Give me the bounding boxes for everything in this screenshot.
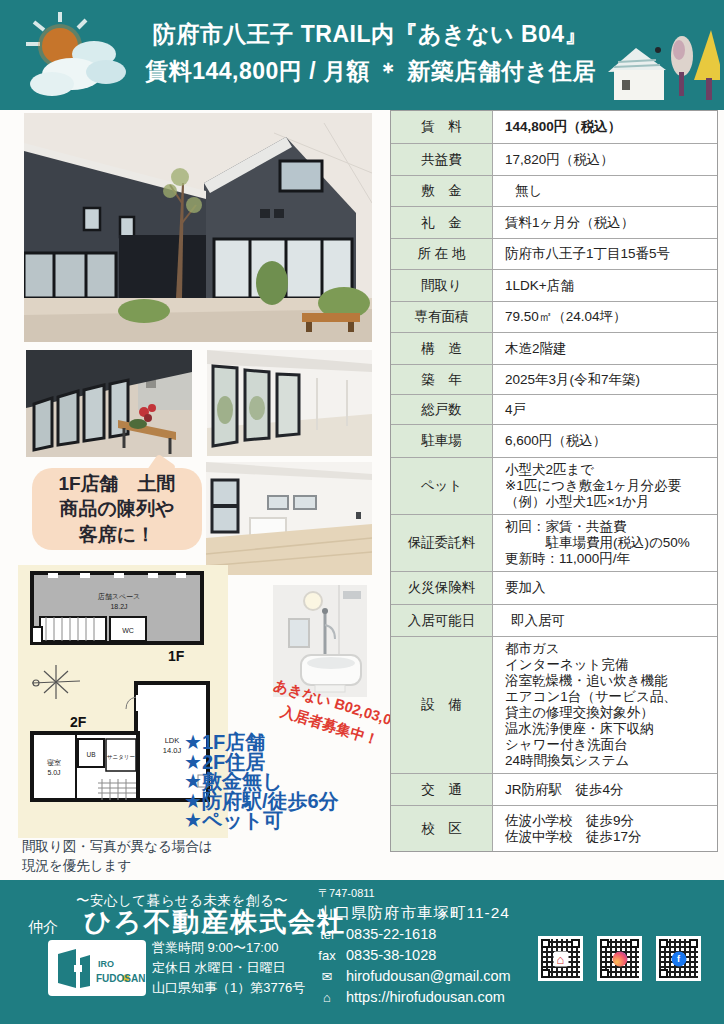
row-value: 144,800円（税込） (493, 111, 717, 143)
highlights-list: ★1F店舗 ★2F住居 ★敷金無し ★防府駅/徒歩6分 ★ペット可 (184, 733, 339, 831)
row-label: 敷 金 (391, 176, 493, 206)
row-label: 交 通 (391, 774, 493, 805)
highlight-item: ★1F店舗 (184, 733, 339, 753)
row-value: 初回：家賃・共益費 駐車場費用(税込)の50% 更新時：11,000円/年 (493, 515, 717, 571)
table-row: 校 区佐波小学校 徒歩9分 佐波中学校 徒歩17分 (391, 806, 717, 851)
postal-code: 〒747-0811 (318, 886, 511, 902)
floorplan-sanitary-label: サニタリー (107, 754, 135, 760)
row-label: 駐車場 (391, 425, 493, 457)
qr-code-instagram (597, 936, 642, 981)
row-label: 築 年 (391, 365, 493, 394)
logo-text-line2: FUDOSAN (96, 973, 145, 984)
table-row: 駐車場6,600円（税込） (391, 425, 717, 458)
row-value: 79.50㎡（24.04坪） (493, 302, 717, 332)
table-row: 総戸数4戸 (391, 395, 717, 425)
highlight-item: ★敷金無し (184, 772, 339, 792)
table-row: 敷 金無し (391, 176, 717, 207)
company-address: 山口県防府市車塚町11-24 (318, 902, 511, 924)
instagram-icon (612, 951, 627, 966)
floorplan-ldk-size: 14.0J (163, 746, 182, 755)
table-row: 専有面積79.50㎡（24.04坪） (391, 302, 717, 333)
qr-pattern: f (659, 939, 698, 978)
table-row: ペット小型犬2匹まで ※1匹につき敷金1ヶ月分必要 （例）小型犬1匹×1か月 (391, 458, 717, 515)
floorplan-ldk-label: LDK (165, 736, 180, 745)
row-value: 6,600円（税込） (493, 425, 717, 457)
flyer-title-line2: 賃料144,800円 / 月額 ＊ 新築店舗付き住居 (135, 53, 606, 90)
row-label: 校 区 (391, 806, 493, 851)
table-row: 設 備都市ガス インターネット完備 浴室乾燥機・追い炊き機能 エアコン1台（サー… (391, 637, 717, 774)
row-value: 小型犬2匹まで ※1匹につき敷金1ヶ月分必要 （例）小型犬1匹×1か月 (493, 458, 717, 514)
photo-interior-ldk (206, 462, 372, 575)
row-label: 火災保険料 (391, 572, 493, 604)
logo-text-line1: IRO (98, 959, 114, 969)
company-logo: IRO FUDOSAN (48, 940, 146, 996)
floorplan-wc-label: WC (122, 627, 134, 634)
row-label: 賃 料 (391, 111, 493, 143)
floorplan-store-size: 18.2J (110, 603, 127, 610)
row-value: 都市ガス インターネット完備 浴室乾燥機・追い炊き機能 エアコン1台（サービス品… (493, 637, 717, 773)
footer-band: 〜安心して暮らせる未来を創る〜 仲介 ひろ不動産株式会社 IRO FUDOSAN… (0, 880, 724, 1024)
flyer-title: 防府市八王子 TRAIL内『あきない B04』 賃料144,800円 / 月額 … (135, 16, 606, 90)
contact-block: 〒747-0811 山口県防府市車塚町11-24 tel0835-22-1618… (318, 886, 511, 1008)
qr-corner (630, 939, 639, 948)
row-label: 間取り (391, 270, 493, 301)
email-address: hirofudousan@gmail.com (346, 966, 511, 987)
row-label: 保証委託料 (391, 515, 493, 571)
row-value: 17,820円（税込） (493, 144, 717, 175)
table-row: 所 在 地防府市八王子1丁目15番5号 (391, 239, 717, 270)
table-row: 構 造木造2階建 (391, 333, 717, 365)
row-label: 礼 金 (391, 207, 493, 238)
row-label: 専有面積 (391, 302, 493, 332)
qr-corner (600, 939, 609, 948)
qr-pattern (600, 939, 639, 978)
house-trees-illustration (602, 14, 720, 106)
tel-number: 0835-22-1618 (346, 924, 436, 945)
qr-corner (571, 939, 580, 948)
row-label: 設 備 (391, 637, 493, 773)
table-row: 礼 金賃料1ヶ月分（税込） (391, 207, 717, 239)
table-row: 保証委託料初回：家賃・共益費 駐車場費用(税込)の50% 更新時：11,000円… (391, 515, 717, 572)
header-band: 防府市八王子 TRAIL内『あきない B04』 賃料144,800円 / 月額 … (0, 0, 724, 110)
row-value: 木造2階建 (493, 333, 717, 364)
home-icon: ⌂ (553, 951, 568, 966)
row-value: 1LDK+店舗 (493, 270, 717, 301)
row-label: ペット (391, 458, 493, 514)
row-value: 防府市八王子1丁目15番5号 (493, 239, 717, 269)
speech-bubble: 1F店舗 土間 商品の陳列や 客席に！ (32, 468, 202, 550)
flyer-page: 防府市八王子 TRAIL内『あきない B04』 賃料144,800円 / 月額 … (0, 0, 724, 1024)
table-row: 築 年2025年3月(令和7年築) (391, 365, 717, 395)
tel-label: tel (318, 926, 336, 945)
fax-number: 0835-38-1028 (346, 945, 436, 966)
qr-corner (541, 969, 550, 978)
property-spec-table: 賃 料144,800円（税込） 共益費17,820円（税込） 敷 金無し 礼 金… (390, 110, 718, 852)
website-url: https://hirofudousan.com (346, 987, 505, 1008)
row-value: 要加入 (493, 572, 717, 604)
qr-code-website: ⌂ (538, 936, 583, 981)
floorplan-ub-label: UB (86, 751, 95, 758)
qr-corner (541, 939, 550, 948)
row-value: 2025年3月(令和7年築) (493, 365, 717, 394)
table-row: 共益費17,820円（税込） (391, 144, 717, 176)
flyer-title-line1: 防府市八王子 TRAIL内『あきない B04』 (135, 16, 606, 53)
row-label: 総戸数 (391, 395, 493, 424)
floorplan-2f-label: 2F (70, 714, 87, 730)
floorplan-1f-label: 1F (168, 648, 185, 664)
row-value: 即入居可 (493, 605, 717, 636)
qr-corner (689, 939, 698, 948)
qr-pattern: ⌂ (541, 939, 580, 978)
sun-clouds-illustration (14, 6, 139, 106)
floorplan-bedroom-size: 5.0J (47, 769, 60, 776)
home-icon: ⌂ (318, 989, 336, 1008)
table-row: 賃 料144,800円（税込） (391, 111, 717, 144)
email-icon: ✉ (318, 968, 336, 987)
table-row: 交 通JR防府駅 徒歩4分 (391, 774, 717, 806)
floorplan-bedroom-label: 寝室 (47, 759, 61, 767)
floorplan-disclaimer: 間取り図・写真が異なる場合は 現況を優先します (22, 838, 213, 876)
broker-label: 仲介 (28, 918, 58, 937)
row-value: 賃料1ヶ月分（税込） (493, 207, 717, 238)
qr-corner (600, 969, 609, 978)
qr-code-facebook: f (656, 936, 701, 981)
row-label: 入居可能日 (391, 605, 493, 636)
floorplan-store-label: 店舗スペース (98, 592, 141, 601)
row-value: 無し (493, 176, 717, 206)
fax-label: fax (318, 947, 336, 966)
table-row: 間取り1LDK+店舗 (391, 270, 717, 302)
row-value: 佐波小学校 徒歩9分 佐波中学校 徒歩17分 (493, 806, 717, 851)
qr-corner (659, 939, 668, 948)
table-row: 火災保険料要加入 (391, 572, 717, 605)
row-label: 所 在 地 (391, 239, 493, 269)
row-value: 4戸 (493, 395, 717, 424)
table-row: 入居可能日即入居可 (391, 605, 717, 637)
row-value: JR防府駅 徒歩4分 (493, 774, 717, 805)
photo-courtyard (26, 350, 192, 457)
highlight-item: ★ペット可 (184, 811, 339, 831)
business-info: 営業時間 9:00〜17:00 定休日 水曜日・日曜日 山口県知事（1）第377… (152, 938, 305, 998)
photo-main-exterior (24, 113, 372, 342)
photo-interior-corridor (207, 350, 372, 456)
company-name: ひろ不動産株式会社 (84, 904, 346, 940)
row-label: 共益費 (391, 144, 493, 175)
qr-corner (659, 969, 668, 978)
row-label: 構 造 (391, 333, 493, 364)
hiro-fudosan-logo-icon: IRO FUDOSAN (48, 940, 146, 996)
facebook-icon: f (671, 951, 686, 966)
